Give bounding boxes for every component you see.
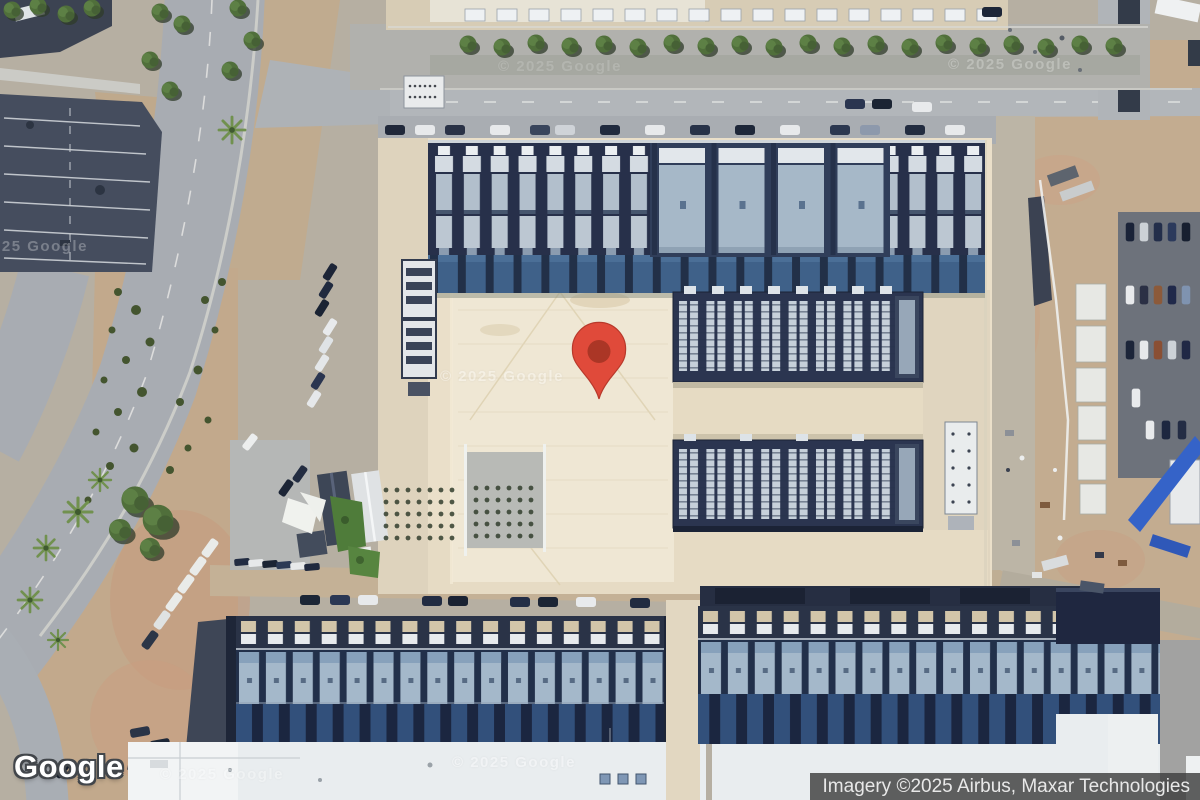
datacenter-building-southwest [186,595,672,750]
map-viewport[interactable]: © 2025 Google © 2025 Google © 2025 Googl… [0,0,1200,800]
datacenter-building-north [428,140,985,298]
west-annex-towers [402,260,436,396]
alley-between-buildings [666,600,700,800]
imagery-attribution: Imagery ©2025 Airbus, Maxar Technologies [810,773,1200,800]
satellite-imagery[interactable] [0,0,1200,800]
google-logo[interactable]: Google [14,749,124,785]
trailer-stack [1076,284,1106,514]
parking-lot-east [1118,212,1200,478]
